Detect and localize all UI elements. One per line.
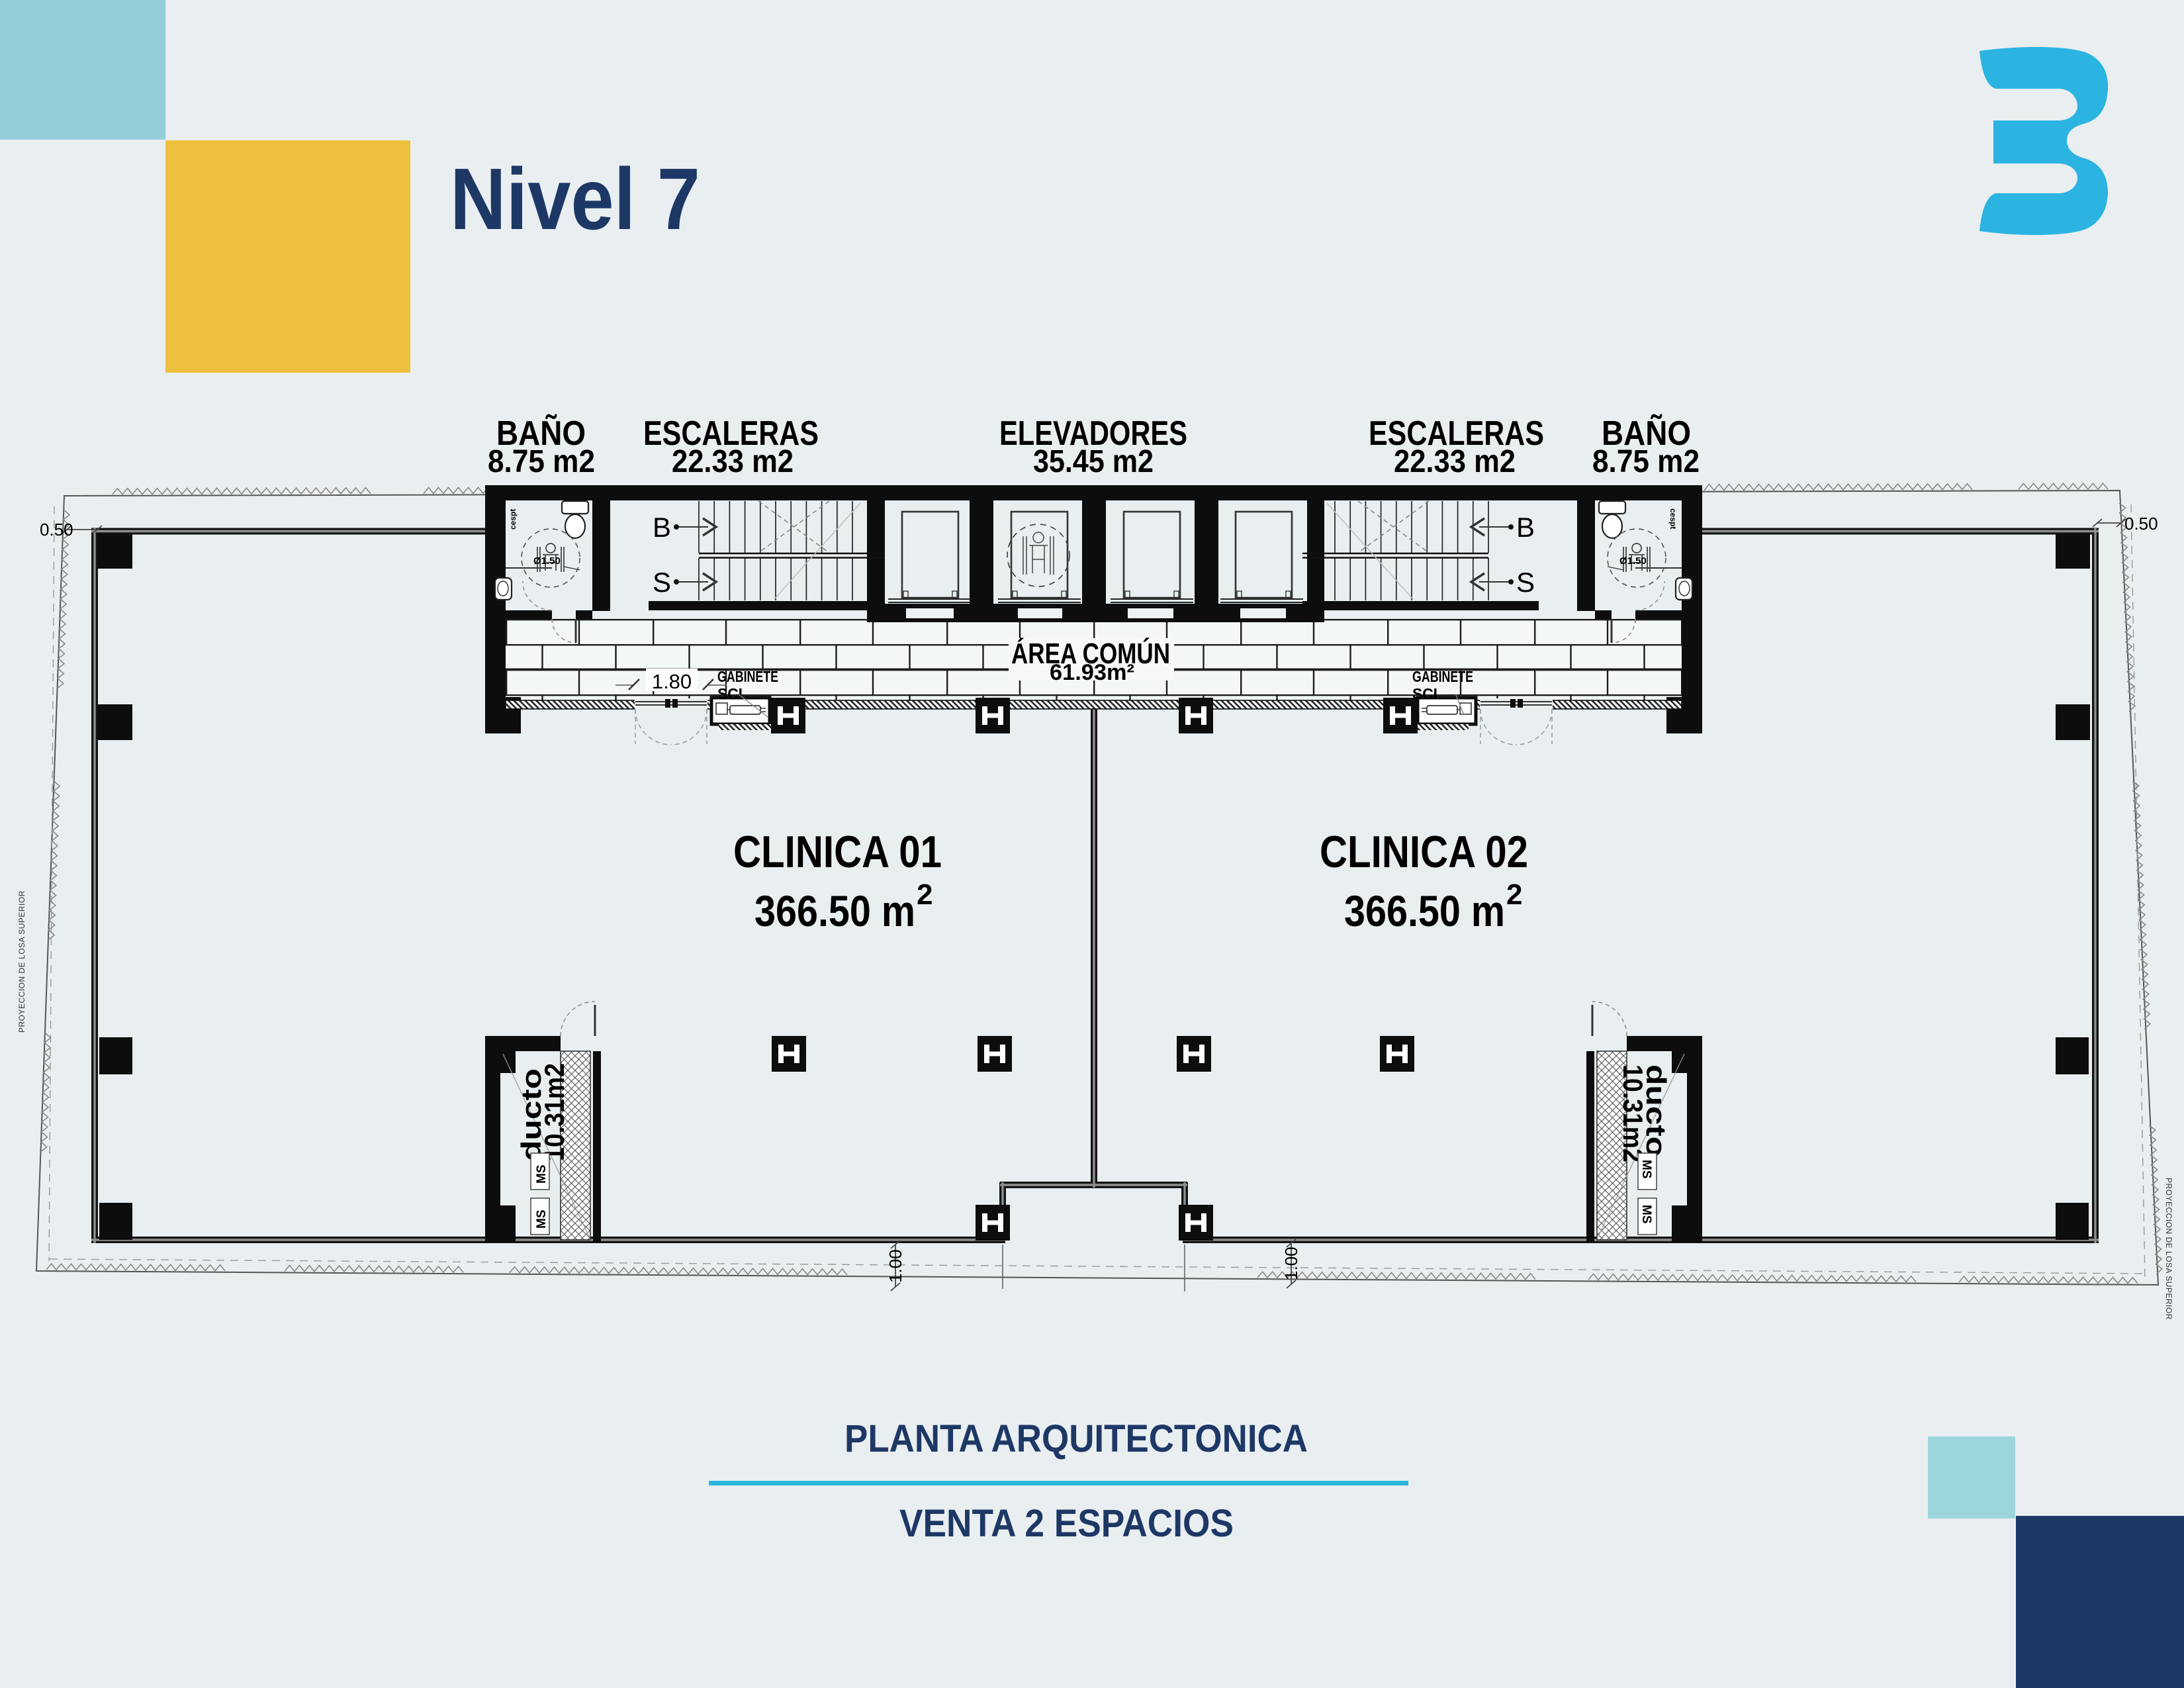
svg-text:CLINICA 01: CLINICA 01 bbox=[733, 827, 942, 877]
svg-text:SCI: SCI bbox=[1412, 685, 1437, 702]
svg-text:GABINETE: GABINETE bbox=[717, 668, 778, 685]
svg-text:1.00: 1.00 bbox=[1281, 1246, 1301, 1280]
svg-text:0.50: 0.50 bbox=[2124, 514, 2158, 534]
svg-text:8.75 m2: 8.75 m2 bbox=[488, 444, 595, 479]
svg-text:MS: MS bbox=[1639, 1160, 1653, 1179]
svg-text:22.33 m2: 22.33 m2 bbox=[1394, 444, 1516, 479]
svg-text:35.45 m2: 35.45 m2 bbox=[1033, 444, 1154, 479]
svg-text:VENTA 2 ESPACIOS: VENTA 2 ESPACIOS bbox=[899, 1502, 1234, 1545]
svg-text:0.50: 0.50 bbox=[40, 520, 73, 539]
svg-text:22.33 m2: 22.33 m2 bbox=[672, 444, 794, 479]
svg-text:PLANTA ARQUITECTONICA: PLANTA ARQUITECTONICA bbox=[844, 1417, 1308, 1460]
svg-text:Ø1.50: Ø1.50 bbox=[533, 555, 561, 567]
svg-text:GABINETE: GABINETE bbox=[1412, 668, 1473, 685]
svg-text:61.93m²: 61.93m² bbox=[1050, 660, 1134, 685]
svg-text:Nivel 7: Nivel 7 bbox=[450, 150, 700, 248]
svg-text:10.31m2: 10.31m2 bbox=[1617, 1064, 1649, 1162]
svg-text:cespt: cespt bbox=[1668, 508, 1678, 529]
svg-text:366.50 m: 366.50 m bbox=[1344, 886, 1505, 935]
svg-text:8.75 m2: 8.75 m2 bbox=[1592, 444, 1700, 479]
svg-text:10.31m2: 10.31m2 bbox=[539, 1063, 570, 1161]
svg-text:B: B bbox=[653, 512, 671, 543]
svg-text:PROYECCION DE LOSA SUPERIOR: PROYECCION DE LOSA SUPERIOR bbox=[17, 890, 26, 1033]
svg-text:SCI: SCI bbox=[717, 685, 743, 702]
svg-text:cespt: cespt bbox=[508, 509, 518, 530]
svg-text:S: S bbox=[1516, 567, 1535, 598]
svg-text:B: B bbox=[1516, 512, 1535, 543]
svg-text:366.50 m: 366.50 m bbox=[754, 886, 915, 935]
svg-text:2: 2 bbox=[1506, 878, 1522, 911]
svg-text:MS: MS bbox=[535, 1165, 549, 1184]
svg-text:2: 2 bbox=[917, 878, 933, 911]
svg-text:PROYECCION DE LOSA SUPERIOR: PROYECCION DE LOSA SUPERIOR bbox=[2164, 1178, 2173, 1320]
svg-text:Ø1.50: Ø1.50 bbox=[1619, 555, 1647, 567]
svg-text:S: S bbox=[653, 567, 671, 598]
svg-text:CLINICA 02: CLINICA 02 bbox=[1320, 827, 1528, 877]
svg-text:MS: MS bbox=[1639, 1205, 1653, 1224]
svg-text:1.00: 1.00 bbox=[886, 1249, 905, 1283]
svg-text:MS: MS bbox=[535, 1210, 549, 1229]
svg-text:1.80: 1.80 bbox=[652, 670, 692, 693]
